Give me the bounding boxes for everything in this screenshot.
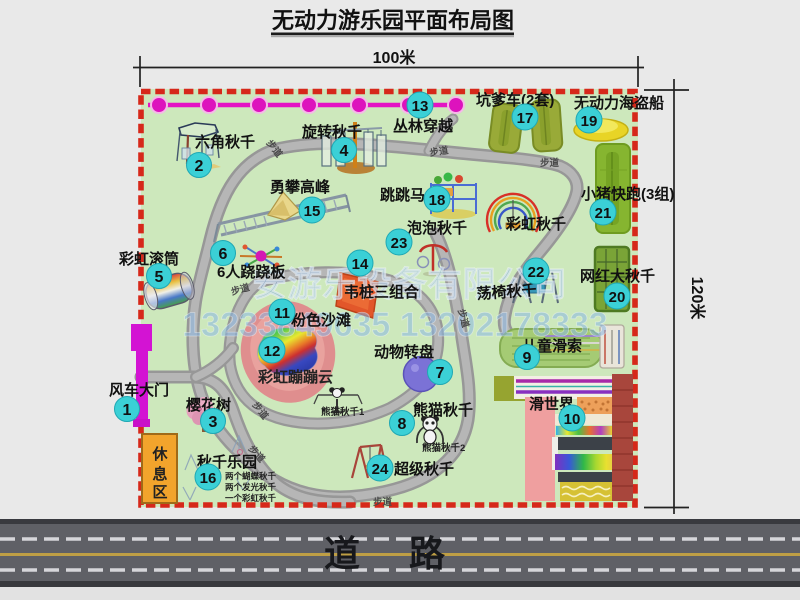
svg-text:两个蝴蝶秋千: 两个蝴蝶秋千 <box>225 471 277 481</box>
svg-text:旋转秋千: 旋转秋千 <box>301 123 362 141</box>
svg-text:小猪快跑(3组): 小猪快跑(3组) <box>581 185 674 203</box>
svg-text:区: 区 <box>152 484 167 501</box>
svg-text:100米: 100米 <box>373 48 417 67</box>
svg-text:熊猫秋千2: 熊猫秋千2 <box>422 442 465 454</box>
svg-text:熊猫秋千1: 熊猫秋千1 <box>321 406 365 418</box>
svg-text:彩虹滚筒: 彩虹滚筒 <box>118 250 179 268</box>
svg-text:6: 6 <box>219 246 228 263</box>
svg-text:17: 17 <box>517 110 534 127</box>
svg-text:勇攀高峰: 勇攀高峰 <box>270 178 331 196</box>
svg-text:风车大门: 风车大门 <box>109 381 169 399</box>
svg-text:超级秋千: 超级秋千 <box>393 460 454 478</box>
svg-text:彩虹蹦蹦云: 彩虹蹦蹦云 <box>257 368 333 386</box>
svg-text:丛林穿越: 丛林穿越 <box>393 117 454 135</box>
svg-text:息: 息 <box>152 465 167 483</box>
svg-text:23: 23 <box>391 235 408 252</box>
svg-text:粉色沙滩: 粉色沙滩 <box>291 311 351 329</box>
svg-text:9: 9 <box>523 350 532 367</box>
svg-text:4: 4 <box>340 143 349 160</box>
svg-text:18: 18 <box>429 192 446 209</box>
svg-text:彩虹秋千: 彩虹秋千 <box>505 215 566 233</box>
svg-text:网红大秋千: 网红大秋千 <box>580 267 655 285</box>
svg-text:1: 1 <box>123 402 132 419</box>
svg-text:步道: 步道 <box>540 157 560 169</box>
svg-text:120米: 120米 <box>688 277 707 321</box>
svg-text:10: 10 <box>564 411 581 428</box>
svg-text:2: 2 <box>195 158 204 175</box>
svg-text:7: 7 <box>436 365 445 382</box>
svg-text:12: 12 <box>264 343 281 360</box>
svg-text:韦桩三组合: 韦桩三组合 <box>344 283 420 301</box>
svg-text:步道: 步道 <box>373 496 393 508</box>
svg-text:14: 14 <box>352 256 369 273</box>
svg-text:动物转盘: 动物转盘 <box>374 343 434 361</box>
svg-text:泡泡秋千: 泡泡秋千 <box>407 219 467 237</box>
svg-text:六角秋千: 六角秋千 <box>195 133 255 151</box>
svg-text:跳跳马: 跳跳马 <box>380 186 425 204</box>
svg-text:20: 20 <box>609 289 626 306</box>
svg-text:3: 3 <box>209 414 218 431</box>
svg-text:11: 11 <box>274 305 290 322</box>
svg-text:坑爹车(2套): 坑爹车(2套) <box>476 91 554 109</box>
svg-text:16: 16 <box>200 470 217 487</box>
svg-text:道: 道 <box>324 533 360 574</box>
svg-text:无动力游乐园平面布局图: 无动力游乐园平面布局图 <box>272 8 514 33</box>
svg-text:熊猫秋千: 熊猫秋千 <box>413 401 473 419</box>
svg-text:休: 休 <box>151 445 168 463</box>
svg-text:6人跷跷板: 6人跷跷板 <box>217 263 286 281</box>
svg-text:一个彩虹秋千: 一个彩虹秋千 <box>225 493 277 503</box>
svg-text:22: 22 <box>528 264 545 281</box>
svg-text:15: 15 <box>304 203 321 220</box>
svg-text:8: 8 <box>398 416 407 433</box>
svg-text:5: 5 <box>155 269 164 286</box>
svg-text:13: 13 <box>412 98 429 115</box>
svg-text:两个发光秋千: 两个发光秋千 <box>225 482 277 492</box>
svg-text:路: 路 <box>409 533 446 574</box>
svg-text:24: 24 <box>372 461 389 478</box>
svg-text:19: 19 <box>581 113 598 130</box>
svg-text:21: 21 <box>595 205 612 222</box>
